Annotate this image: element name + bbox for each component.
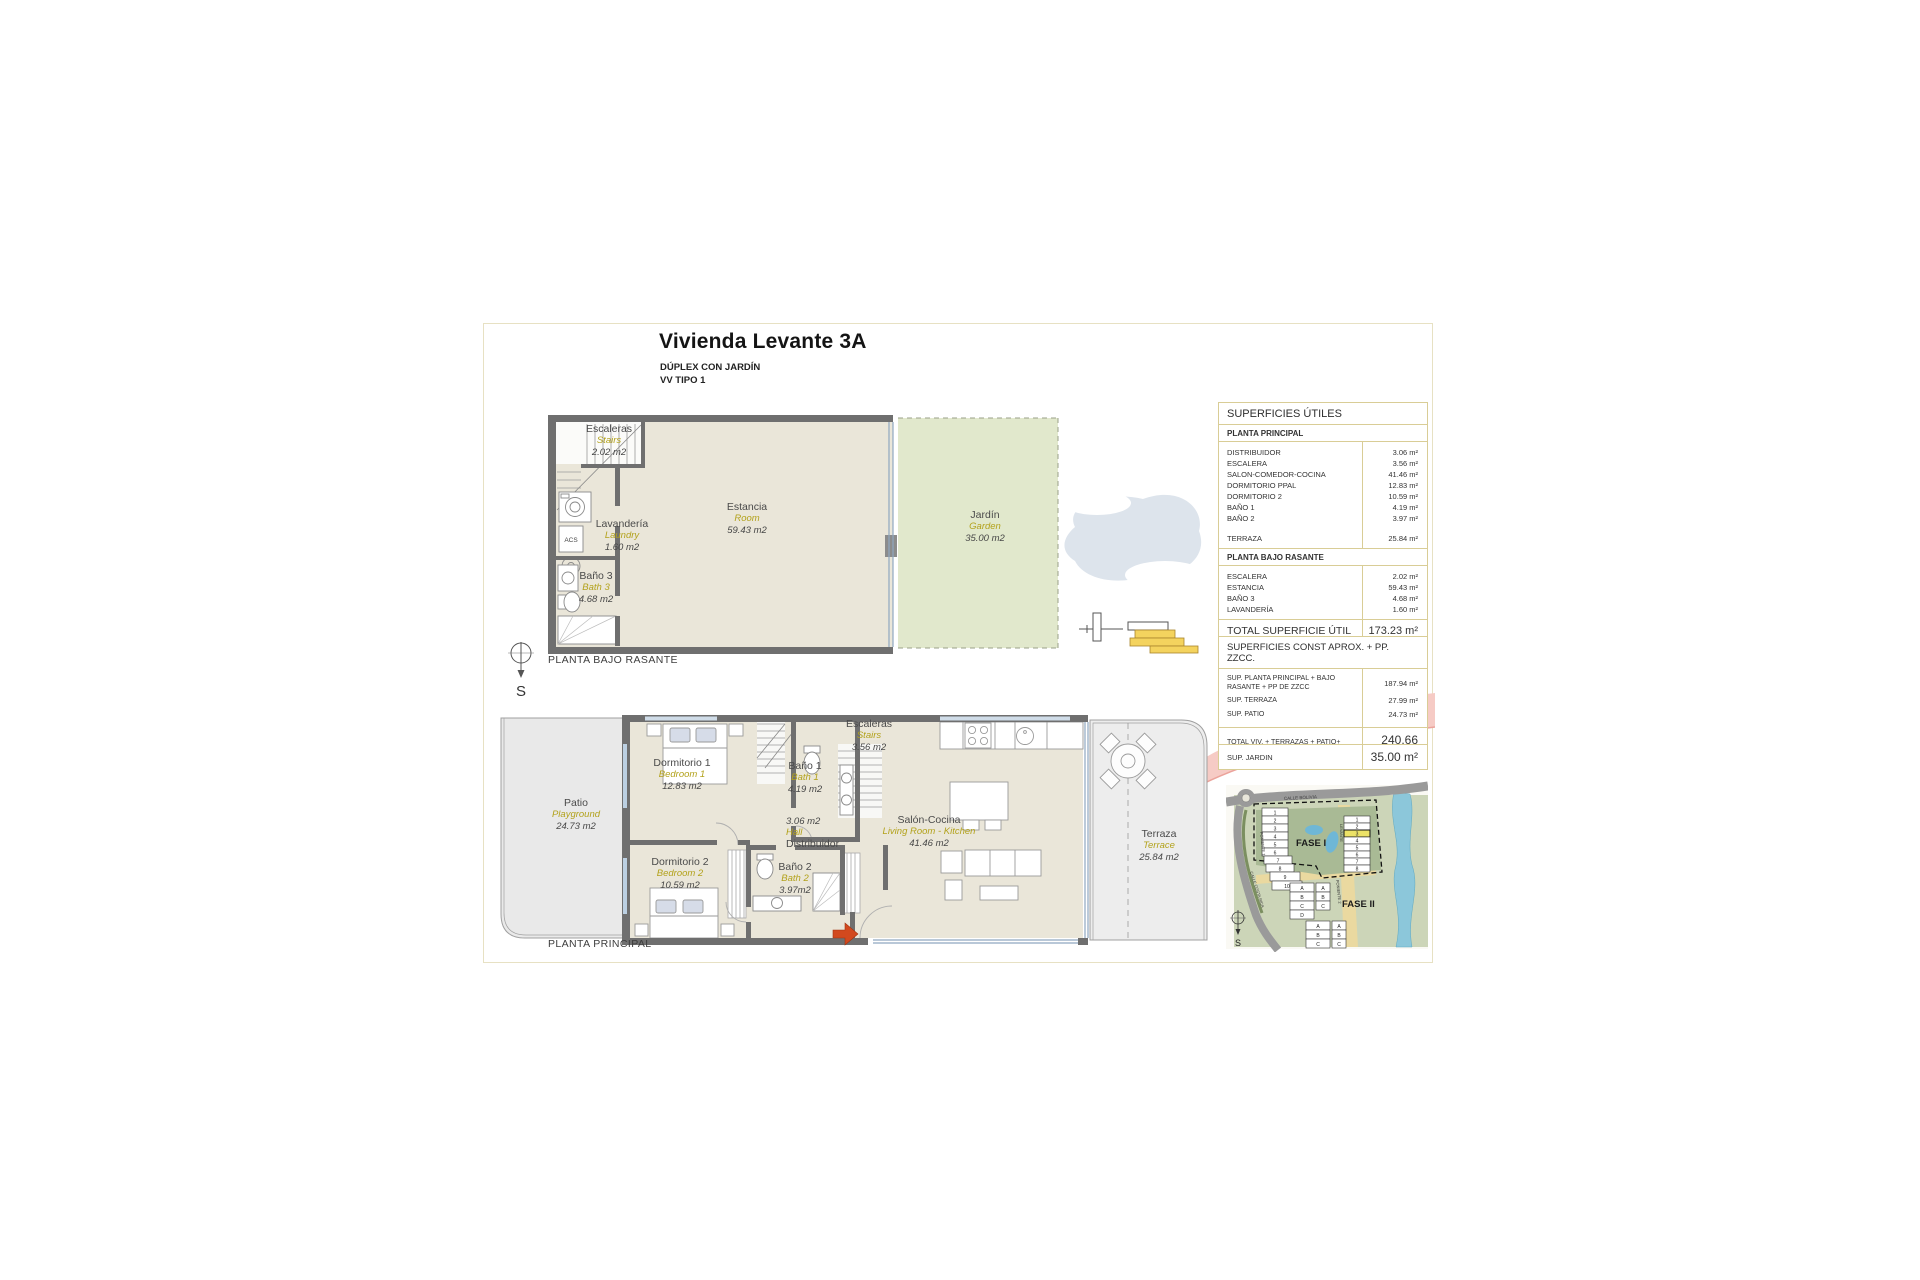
room-area: 35.00 m2 [953,533,1017,544]
table-rows-planta-principal: DISTRIBUIDOR3.06 m² ESCALERA3.56 m² SALO… [1219,442,1427,548]
row-value: 1.60 m² [1370,604,1418,615]
plan-sheet-page: Vivienda Levante 3A DÚPLEX CON JARDÍN VV… [0,0,1920,1280]
svg-text:8: 8 [1279,867,1282,873]
fase1-right-unit-numbers: 1 2 3 4 5 6 7 8 [1356,818,1359,873]
row-label: BAÑO 1 [1227,502,1255,513]
svg-text:5: 5 [1274,843,1277,849]
room-area: 59.43 m2 [715,525,779,536]
room-area: 4.19 m2 [781,784,829,795]
row-label: ESCALERA [1227,571,1267,582]
room-label-escaleras-lower: Escaleras Stairs 3.56 m2 [841,718,897,753]
room-area: 24.73 m2 [545,821,607,832]
svg-text:3: 3 [1356,832,1359,838]
site-location-map: 1 2 3 4 5 6 7 8 9 10 1 2 3 4 5 6 7 8 [1226,780,1428,952]
svg-text:2: 2 [1274,819,1277,825]
svg-text:C: C [1337,942,1341,948]
room-label-dorm2: Dormitorio 2 Bedroom 2 10.59 m2 [647,856,713,891]
room-name: Distribuidor [786,838,858,850]
table-rows-planta-bajo-rasante: ESCALERA2.02 m² ESTANCIA59.43 m² BAÑO 34… [1219,566,1427,619]
room-area: 12.83 m2 [632,781,732,792]
room-area: 2.02 m2 [578,447,640,458]
row-label: ESTANCIA [1227,582,1264,593]
row-label: ESCALERA [1227,458,1267,469]
room-label-patio: Patio Playground 24.73 m2 [545,797,607,832]
sup-jardin-table: SUP. JARDIN 35.00 m² [1218,744,1428,770]
room-name: Estancia [715,501,779,513]
kitchen-counter-icon [940,722,1083,749]
room-name: Jardín [953,509,1017,521]
terrain-blob-decoration [1055,485,1205,595]
row-label: SUP. JARDIN [1227,753,1273,762]
room-label-lavanderia: Lavandería Laundry 1.60 m2 [590,518,654,553]
room-label-distribuidor: 3.06 m2 Hall Distribuidor [786,816,858,851]
fase2-label: FASE II [1342,899,1375,910]
svg-text:7: 7 [1356,860,1359,866]
svg-text:C: C [1300,904,1304,910]
row-label: BAÑO 2 [1227,513,1255,524]
svg-text:C: C [1316,942,1320,948]
table-row: SUP. PLANTA PRINCIPAL + BAJO RASANTE + P… [1219,674,1427,692]
room-name-en: Living Room - Kitchen [869,826,989,837]
row-value: 41.46 m² [1370,469,1418,480]
row-label: SUP. TERRAZA [1227,696,1277,705]
room-name: Baño 2 [771,861,819,873]
room-area: 1.60 m2 [590,542,654,553]
row-value: 24.73 m² [1370,709,1418,720]
room-name-en: Bedroom 1 [632,769,732,780]
row-value: 12.83 m² [1370,480,1418,491]
svg-text:C: C [1321,904,1325,910]
room-label-jardin: Jardín Garden 35.00 m2 [953,509,1017,544]
table-title: SUPERFICIES ÚTILES [1219,403,1427,425]
room-label-bano1: Baño 1 Bath 1 4.19 m2 [781,760,829,795]
room-name: Patio [545,797,607,809]
row-value: 3.56 m² [1370,458,1418,469]
page-title: Vivienda Levante 3A [659,330,867,354]
svg-text:9: 9 [1284,875,1287,881]
table-row: DORMITORIO 210.59 m² [1219,491,1427,502]
room-name: Escaleras [841,718,897,730]
table-row: LAVANDERÍA1.60 m² [1219,604,1427,615]
room-label-salon: Salón-Cocina Living Room - Kitchen 41.46… [869,814,989,849]
svg-text:D: D [1300,913,1304,919]
room-name: Terraza [1126,828,1192,840]
room-name-en: Stairs [578,435,640,446]
row-label: DORMITORIO PPAL [1227,480,1296,491]
table-row: DORMITORIO PPAL12.83 m² [1219,480,1427,491]
table-row: BAÑO 14.19 m² [1219,502,1427,513]
compass-upper: S [502,638,542,702]
svg-text:2: 2 [1356,825,1359,831]
row-value: 10.59 m² [1370,491,1418,502]
svg-text:6: 6 [1274,851,1277,857]
svg-text:7: 7 [1277,859,1280,865]
row-value: 27.99 m² [1370,695,1418,706]
table-row: BAÑO 34.68 m² [1219,593,1427,604]
room-name-en: Stairs [841,730,897,741]
row-value: 187.94 m² [1370,678,1418,689]
room-name: Salón-Cocina [869,814,989,826]
row-value: 59.43 m² [1370,582,1418,593]
row-value: 3.97 m² [1370,513,1418,524]
table-row: SALON-COMEDOR-COCINA41.46 m² [1219,469,1427,480]
compass-south-label: S [516,683,526,700]
table-row: ESTANCIA59.43 m² [1219,582,1427,593]
room-name: Baño 3 [570,570,622,582]
room-name: Escaleras [578,423,640,435]
roundabout-center [1242,794,1250,802]
svg-text:4: 4 [1274,835,1277,841]
room-name: Lavandería [590,518,654,530]
row-value: 4.19 m² [1370,502,1418,513]
table-rows-const: SUP. PLANTA PRINCIPAL + BAJO RASANTE + P… [1219,669,1427,727]
upper-plan-caption: PLANTA BAJO RASANTE [548,654,678,666]
compass-south-label: S [1235,938,1241,948]
row-label: DORMITORIO 2 [1227,491,1282,502]
fase1-label: FASE I [1296,838,1326,849]
room-label-dorm1: Dormitorio 1 Bedroom 1 12.83 m2 [632,757,732,792]
page-subtitle-2: VV TIPO 1 [660,375,705,386]
table-section-planta-bajo-rasante: PLANTA BAJO RASANTE [1219,548,1427,566]
svg-text:1: 1 [1356,818,1359,824]
table-row: ESCALERA2.02 m² [1219,571,1427,582]
row-value: 2.02 m² [1370,571,1418,582]
sup-jardin-row: SUP. JARDIN 35.00 m² [1219,745,1427,769]
room-area: 41.46 m2 [869,838,989,849]
table-row: DISTRIBUIDOR3.06 m² [1219,447,1427,458]
room-name: Baño 1 [781,760,829,772]
table-section-planta-principal: PLANTA PRINCIPAL [1219,425,1427,442]
row-label: TERRAZA [1227,533,1262,544]
room-name: Dormitorio 2 [647,856,713,868]
row-value: 25.84 m² [1370,533,1418,544]
room-name-en: Bath 2 [771,873,819,884]
row-value: 4.68 m² [1370,593,1418,604]
table-row: TERRAZA25.84 m² [1219,533,1427,544]
washer-icon [559,492,591,522]
room-name-en: Garden [953,521,1017,532]
svg-text:8: 8 [1356,867,1359,873]
room-name-en: Terrace [1126,840,1192,851]
room-label-bano3: Baño 3 Bath 3 4.68 m2 [570,570,622,605]
row-label: SUP. PATIO [1227,710,1264,719]
table-row: BAÑO 23.97 m² [1219,513,1427,524]
room-area: 3.06 m2 [786,816,858,827]
room-area: 3.97m2 [771,885,819,896]
row-label: LAVANDERÍA [1227,604,1273,615]
room-name-en: Bedroom 2 [647,868,713,879]
table-row: ESCALERA3.56 m² [1219,458,1427,469]
building-label-levante: LEVANTE [1339,824,1344,842]
row-value: 3.06 m² [1370,447,1418,458]
room-area: 10.59 m2 [647,880,713,891]
acs-label: ACS [564,537,578,544]
room-area: 25.84 m2 [1126,852,1192,863]
room-label-bano2: Baño 2 Bath 2 3.97m2 [771,861,819,896]
superficies-utiles-table: SUPERFICIES ÚTILES PLANTA PRINCIPAL DIST… [1218,402,1428,643]
room-name-en: Laundry [590,530,654,541]
section-sketch [1075,600,1210,660]
room-name-en: Bath 1 [781,772,829,783]
row-label: SALON-COMEDOR-COCINA [1227,469,1326,480]
room-label-terraza: Terraza Terrace 25.84 m2 [1126,828,1192,863]
row-label: DISTRIBUIDOR [1227,447,1281,458]
row-value: 35.00 m² [1366,750,1418,764]
room-name-en: Bath 3 [570,582,622,593]
room-area: 3.56 m2 [841,742,897,753]
svg-text:3: 3 [1274,827,1277,833]
pool [1305,825,1323,835]
lower-plan-caption: PLANTA PRINCIPAL [548,938,651,950]
table-title: SUPERFICIES CONST APROX. + PP. ZZCC. [1219,637,1427,669]
room-name-en: Room [715,513,779,524]
room-name-en: Playground [545,809,607,820]
svg-text:4: 4 [1356,839,1359,845]
svg-text:5: 5 [1356,846,1359,852]
svg-text:10: 10 [1284,884,1290,890]
room-area: 4.68 m2 [570,594,622,605]
room-label-escaleras-upper: Escaleras Stairs 2.02 m2 [578,423,640,458]
page-subtitle-1: DÚPLEX CON JARDÍN [660,362,760,373]
table-row: SUP. TERRAZA27.99 m² [1219,695,1427,706]
svg-text:1: 1 [1274,811,1277,817]
room-name-en: Hall [786,827,858,838]
table-row: SUP. PATIO24.73 m² [1219,709,1427,720]
row-label: SUP. PLANTA PRINCIPAL + BAJO RASANTE + P… [1227,674,1345,692]
room-name: Dormitorio 1 [632,757,732,769]
room-label-estancia: Estancia Room 59.43 m2 [715,501,779,536]
row-label: BAÑO 3 [1227,593,1255,604]
svg-text:6: 6 [1356,853,1359,859]
